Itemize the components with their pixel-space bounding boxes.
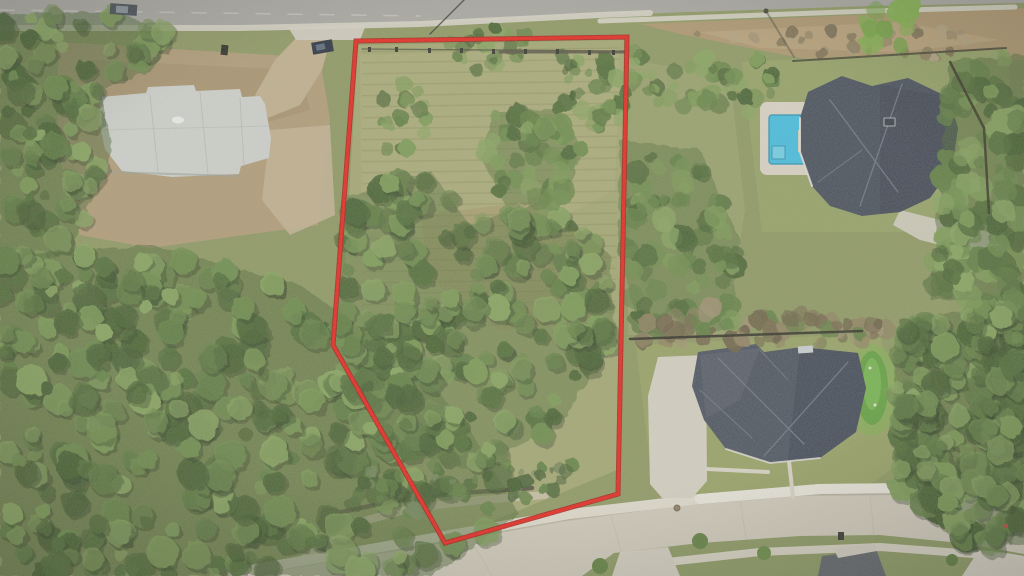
photo-finish <box>0 0 1024 576</box>
aerial-photograph: Aerial drone photograph of a vacant tree… <box>0 0 1024 576</box>
aerial-photo-canvas <box>0 0 1024 576</box>
vignette <box>0 0 1024 576</box>
